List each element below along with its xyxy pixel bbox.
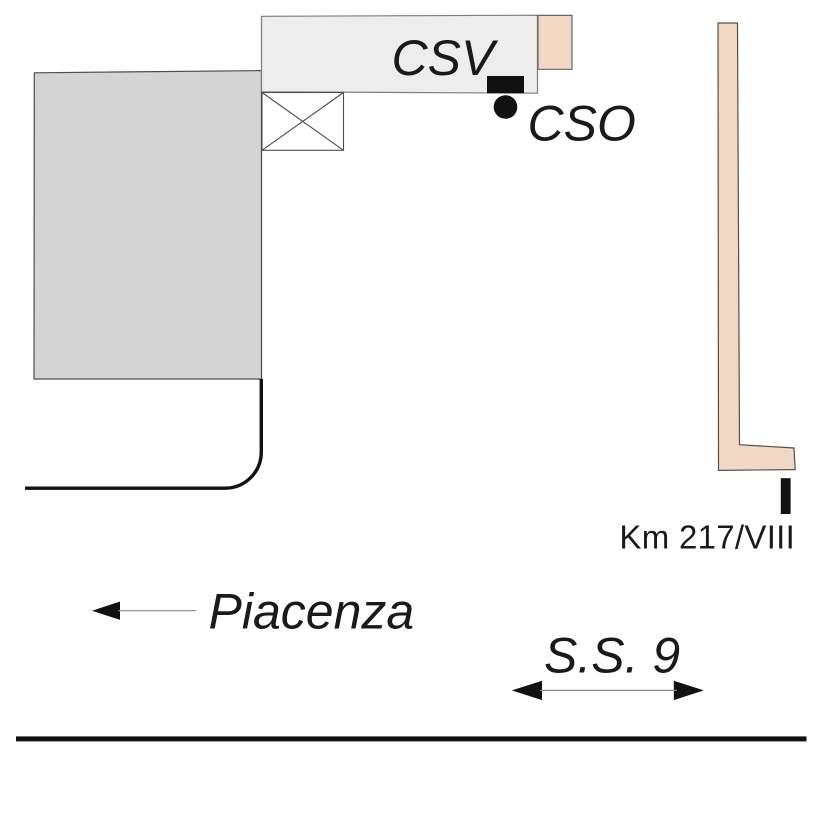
svg-text:Km 217/VIII: Km 217/VIII [619, 518, 795, 555]
svg-text:CSO: CSO [528, 96, 636, 152]
svg-text:Piacenza: Piacenza [209, 584, 415, 640]
svg-text:CSV: CSV [392, 30, 499, 86]
svg-text:S.S. 9: S.S. 9 [544, 628, 680, 684]
